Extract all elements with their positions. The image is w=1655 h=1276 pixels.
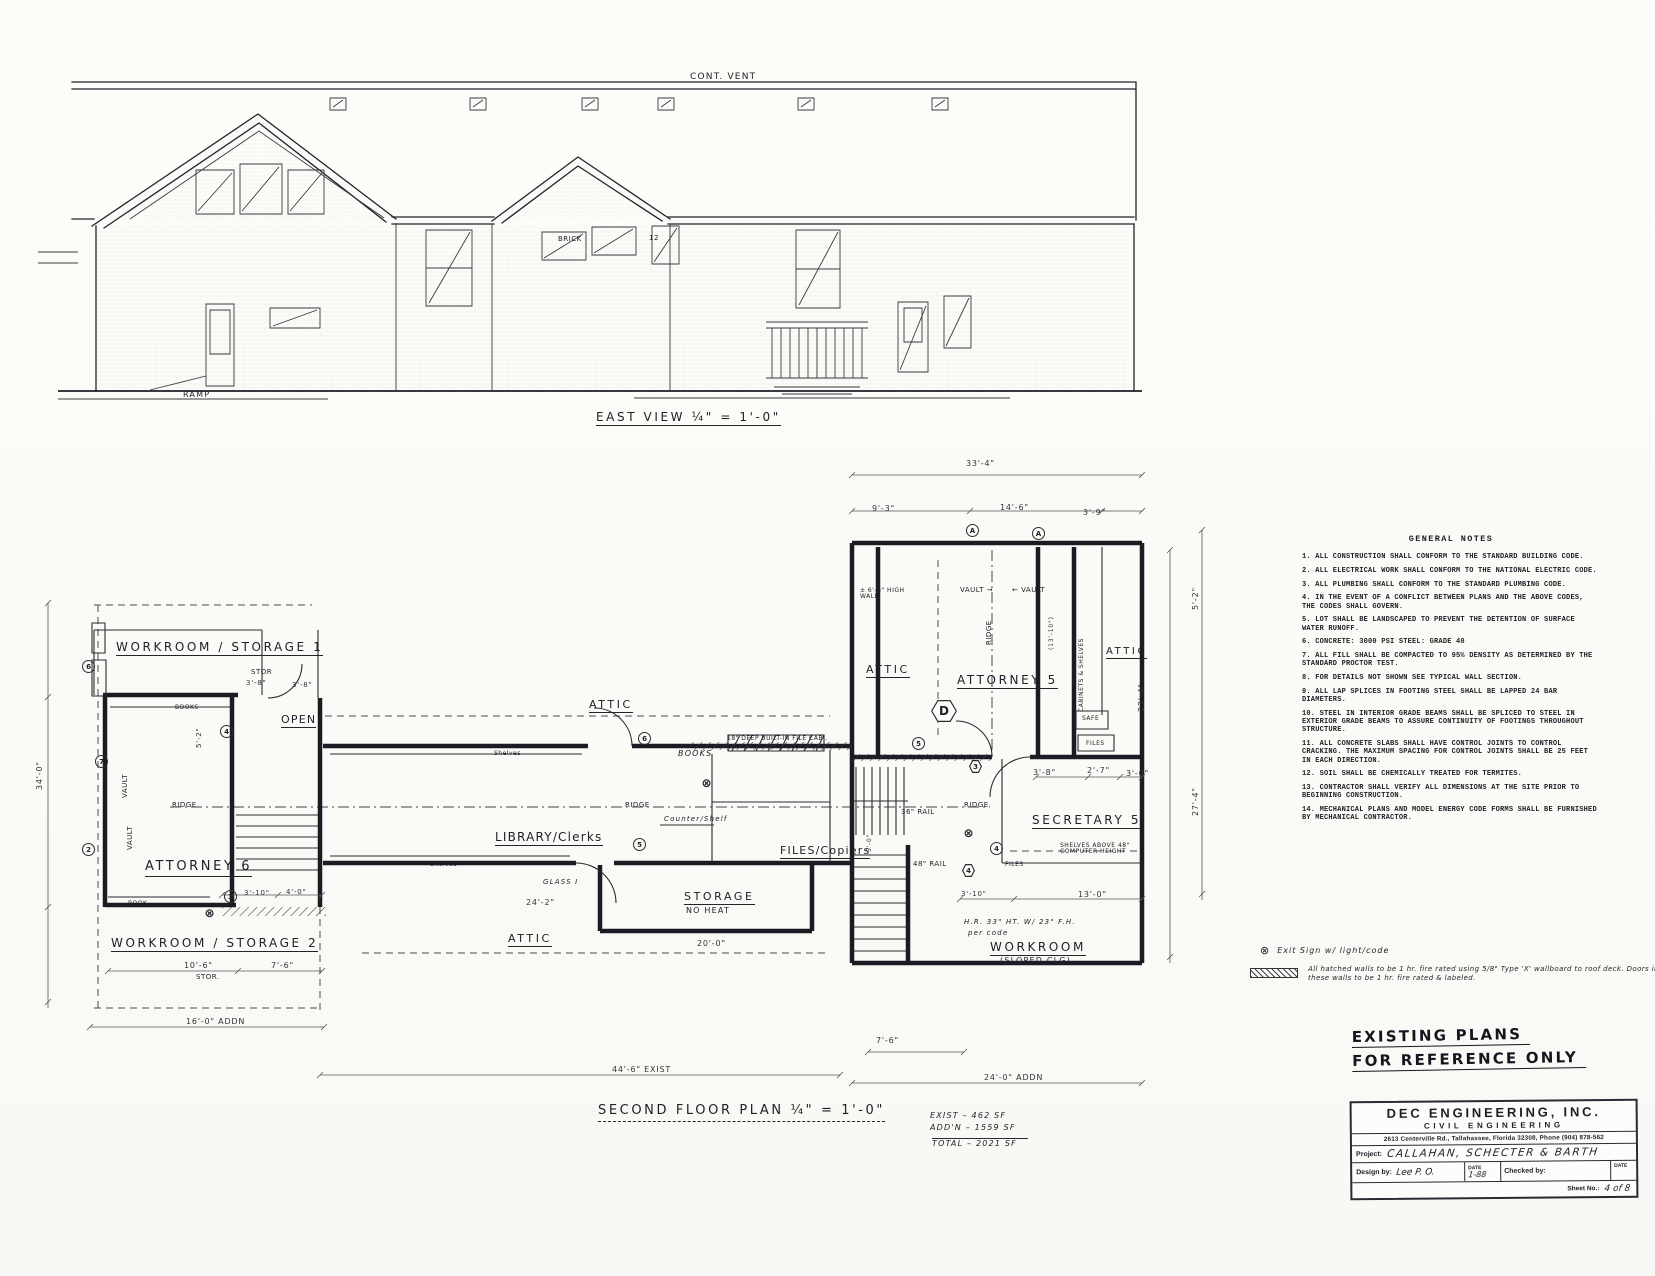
sheet-number-value: 4 of 8 [1604, 1183, 1631, 1193]
drawing-label: SECOND FLOOR PLAN ¼" = 1'-0" [598, 1104, 885, 1122]
company-department: CIVIL ENGINEERING [1352, 1120, 1636, 1131]
drawing-label: STOR [251, 669, 272, 677]
drawing-label: 4'-0" [286, 889, 307, 897]
general-note: 5. LOT SHALL BE LANDSCAPED TO PREVENT TH… [1302, 616, 1600, 633]
drawing-label: 24'-2" [526, 899, 555, 908]
drawing-label: 3'-10" [244, 890, 270, 898]
general-note: 1. ALL CONSTRUCTION SHALL CONFORM TO THE… [1302, 553, 1600, 561]
general-note: 6. CONCRETE: 3000 PSI STEEL: GRADE 40 [1302, 638, 1600, 646]
drawing-label: 7'-6" [876, 1037, 899, 1046]
signature-row: Design by: Lee P. O. DATE 1-88 Checked b… [1352, 1160, 1636, 1182]
sheet-number-row: Sheet No.: 4 of 8 [1352, 1180, 1636, 1198]
drawing-label: EXIST – 462 SF [930, 1112, 1006, 1121]
general-note: 9. ALL LAP SPLICES IN FOOTING STEEL SHAL… [1302, 688, 1600, 705]
drawing-label: 5'-2" [196, 727, 204, 748]
drawing-label: 7'-6" [271, 962, 294, 971]
checked-by-label: Checked by: [1500, 1161, 1610, 1181]
drawing-label: TOTAL – 2021 SF [932, 1138, 1028, 1149]
drawing-label: RIDGE [625, 802, 650, 810]
drawing-label: per code [968, 930, 1008, 938]
drawing-label: (SLOPED CLG) [1000, 957, 1071, 966]
date2-label: DATE [1610, 1161, 1636, 1180]
keynote-tag: ⊗ [700, 776, 713, 789]
drawing-label: 13'-0" [1078, 891, 1107, 900]
drawing-label: BOOKS [678, 750, 712, 759]
fire-wall-text: All hatched walls to be 1 hr. fire rated… [1308, 965, 1655, 984]
drawing-label: CONT. VENT [690, 72, 756, 82]
general-note: 2. ALL ELECTRICAL WORK SHALL CONFORM TO … [1302, 567, 1600, 575]
drawing-label: 34'-0" [36, 761, 45, 790]
general-note: 8. FOR DETAILS NOT SHOWN SEE TYPICAL WAL… [1302, 674, 1600, 682]
drawing-label: GLASS I [543, 879, 578, 887]
drawing-label: 3'-8" [1033, 769, 1056, 778]
drawing-label: 9'-3" [872, 505, 895, 514]
drawing-label: 12 [649, 235, 659, 243]
drawing-label: 23'-4" [1138, 683, 1147, 712]
drawing-label: WORKROOM / STORAGE 1 [116, 641, 323, 656]
drawing-label: 27'-4" [1192, 787, 1201, 816]
drawing-label: VAULT → [960, 587, 993, 595]
drawing-label: STOR. [196, 974, 220, 982]
keynote-tag: A [966, 524, 979, 537]
keynote-tag: ⊗ [203, 906, 216, 919]
drawing-sheet: CONT. VENTEAST VIEW ¼" = 1'-0"RAMP12BRIC… [0, 0, 1655, 1276]
drawing-label: ADD'N – 1559 SF [930, 1124, 1016, 1133]
drawing-label: 3'-8" [292, 682, 313, 690]
keynote-tag: A [1032, 527, 1045, 540]
keynote-tag: ⊗ [962, 826, 975, 839]
general-note: 14. MECHANICAL PLANS AND MODEL ENERGY CO… [1302, 806, 1600, 823]
drawing-label: 5'-2" [1192, 587, 1201, 610]
exit-sign-text: Exit Sign w/ light/code [1277, 946, 1389, 955]
general-notes-list: 1. ALL CONSTRUCTION SHALL CONFORM TO THE… [1302, 553, 1600, 823]
east-elevation-drawing [30, 60, 1150, 420]
drawing-label: Counter/Shelf [664, 816, 728, 824]
drawing-label: 3'-8" [246, 680, 267, 688]
drawing-label: SHELVES ABOVE 48" COMPUTER HEIGHT [1060, 843, 1140, 856]
design-by-signature: Lee P. O. [1395, 1167, 1435, 1177]
drawing-label: FILES [1086, 741, 1105, 748]
drawing-label: SAFE [1082, 716, 1099, 723]
keynote-tag: 2 [82, 843, 95, 856]
drawing-label: Shelves [430, 862, 457, 869]
drawing-label: ← VAULT [1012, 587, 1045, 595]
drawing-label: BRICK [558, 236, 582, 244]
general-note: 10. STEEL IN INTERIOR GRADE BEAMS SHALL … [1302, 710, 1600, 735]
keynote-tag: 6 [82, 660, 95, 673]
keynote-tag: 5 [633, 838, 646, 851]
drawing-label: 3'-10" [961, 891, 987, 899]
keynote-tag: 5 [912, 737, 925, 750]
drawing-label: ATTIC [866, 664, 910, 678]
title-block-header: DEC ENGINEERING, INC. CIVIL ENGINEERING [1352, 1101, 1636, 1133]
general-note: 7. ALL FILL SHALL BE COMPACTED TO 95% DE… [1302, 652, 1600, 669]
exit-sign-symbol: ⊗ [1260, 944, 1269, 957]
drawing-label: 20'-0" [697, 940, 726, 949]
fire-wall-legend: All hatched walls to be 1 hr. fire rated… [1250, 965, 1655, 984]
drawing-label: NO HEAT [686, 907, 730, 916]
drawing-label: WORKROOM / STORAGE 2 [111, 937, 318, 952]
drawing-label: BOOKS [175, 705, 199, 712]
drawing-label: RIDGE [986, 620, 994, 645]
date-cell: DATE 1-88 [1464, 1162, 1500, 1181]
exit-sign-legend: ⊗ Exit Sign w/ light/code [1260, 944, 1389, 957]
reference-stamp: EXISTING PLANS FOR REFERENCE ONLY [1352, 1024, 1587, 1076]
drawing-label: WORKROOM [990, 941, 1086, 956]
drawing-label: RAMP [183, 391, 210, 400]
drawing-label: 24'-0" ADDN [984, 1074, 1043, 1083]
general-note: 11. ALL CONCRETE SLABS SHALL HAVE CONTRO… [1302, 740, 1600, 765]
drawing-label: ATTORNEY 5 [957, 674, 1058, 689]
drawing-label: SECRETARY 5 [1032, 814, 1141, 829]
drawing-label: ATTORNEY 6 [145, 860, 252, 877]
general-notes-panel: GENERAL NOTES 1. ALL CONSTRUCTION SHALL … [1302, 534, 1600, 828]
general-note: 3. ALL PLUMBING SHALL CONFORM TO THE STA… [1302, 581, 1600, 589]
design-by-label: Design by: [1356, 1169, 1392, 1176]
dimension-lines [45, 472, 1205, 1086]
general-note: 4. IN THE EVENT OF A CONFLICT BETWEEN PL… [1302, 594, 1600, 611]
drawing-label: 10'-6" [184, 962, 213, 971]
drawing-label: OPEN [281, 714, 316, 728]
drawing-label: (13'-10") [1049, 616, 1056, 650]
date-value: 1-88 [1468, 1171, 1487, 1179]
project-name: CALLAHAN, SCHECTER & BARTH [1386, 1146, 1599, 1160]
roof-vents [330, 98, 948, 110]
keynote-tag: 6 [638, 732, 651, 745]
drawing-label: 18" DEEP BUILT-IN FILE CABI. [727, 736, 828, 743]
plan-walls [103, 543, 1142, 963]
drawing-label: H.R. 33" HT. W/ 23" F.H. [964, 919, 1076, 927]
keynote-tag: 3 [224, 890, 237, 903]
drawing-label: 44'-6" EXIST [612, 1066, 671, 1075]
title-block: DEC ENGINEERING, INC. CIVIL ENGINEERING … [1350, 1099, 1639, 1201]
stamp-line-1: EXISTING PLANS [1352, 1025, 1531, 1048]
drawing-label: STORAGE [684, 891, 755, 905]
drawing-label: ± 6'-6" HIGH WALL [860, 588, 920, 601]
drawing-label: ATTIC [589, 699, 633, 713]
brick-texture [92, 116, 1134, 391]
sheet-number-label: Sheet No.: [1567, 1185, 1599, 1192]
drawing-label: 3'-0" [1126, 770, 1149, 779]
company-name: DEC ENGINEERING, INC. [1352, 1104, 1636, 1121]
drawing-label: ATTIC [508, 933, 552, 947]
drawing-label: 2'-7" [1087, 767, 1110, 776]
general-notes-title: GENERAL NOTES [1302, 534, 1600, 544]
drawing-label: EAST VIEW ¼" = 1'-0" [596, 411, 781, 426]
drawing-label: LIBRARY/Clerks [495, 831, 603, 846]
drawing-label: 5'-0" [867, 834, 874, 852]
drawing-label: VAULT [122, 774, 130, 798]
drawing-label: Shelves [494, 751, 521, 758]
drawing-label: 33'-4" [966, 460, 995, 469]
drawing-label: CABINETS & SHELVES [1079, 638, 1086, 712]
drawing-label: FILES [1005, 862, 1024, 869]
drawing-label: 14'-6" [1000, 504, 1029, 513]
hatch-swatch [1250, 968, 1298, 978]
general-note: 13. CONTRACTOR SHALL VERIFY ALL DIMENSIO… [1302, 784, 1600, 801]
keynote-tag: 7 [95, 755, 108, 768]
stamp-line-2: FOR REFERENCE ONLY [1352, 1048, 1586, 1072]
drawing-label: RIDGE [964, 802, 989, 810]
drawing-label: RIDGE [172, 802, 197, 810]
drawing-label: 3'-9" [1083, 509, 1106, 518]
drawing-label: VAULT [127, 826, 135, 850]
drawing-label: BOOK [128, 901, 147, 908]
keynote-tag: 4 [220, 725, 233, 738]
drawing-label: ATTIC [1106, 646, 1147, 659]
project-label: Project: [1356, 1150, 1382, 1157]
general-note: 12. SOIL SHALL BE CHEMICALLY TREATED FOR… [1302, 770, 1600, 778]
drawing-label: FILES/Copiers [780, 845, 870, 859]
keynote-tag: 4 [990, 842, 1003, 855]
drawing-label: 16'-0" ADDN [186, 1018, 245, 1027]
drawing-label: 36" RAIL [901, 809, 935, 817]
design-by-cell: Design by: Lee P. O. [1352, 1162, 1464, 1182]
drawing-label: 48" RAIL [913, 861, 947, 869]
